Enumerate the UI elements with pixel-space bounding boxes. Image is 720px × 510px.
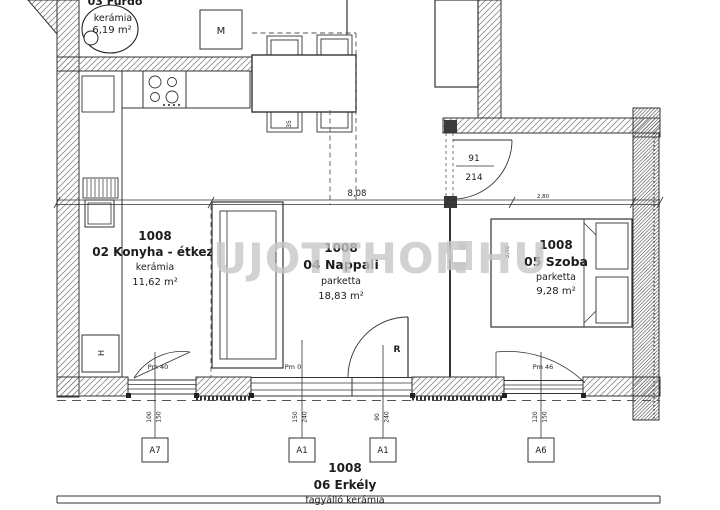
window-a7 (128, 380, 196, 394)
door-r-label: R (394, 345, 401, 355)
watermark-text-right: HU (477, 234, 548, 283)
bathroom-name: 03 Fürdő (88, 0, 143, 8)
door-a1 (251, 378, 412, 397)
bedroom-door-swing-arc (453, 140, 512, 199)
callout-boxes (142, 438, 554, 462)
stove (143, 71, 186, 108)
facade-pier-3 (412, 377, 504, 396)
shaft-box (435, 0, 478, 87)
living-room: R 1008 04 Nappali parketta 18,83 m² (212, 202, 408, 377)
callout-id-a1a: A1 (296, 446, 307, 456)
wall-block-door-bottom (444, 196, 457, 208)
kitchen-unit: 1008 (138, 229, 171, 243)
facade-pier-4 (583, 377, 660, 396)
living-area: 18,83 m² (318, 291, 364, 302)
balcony-name: 06 Erkély (314, 478, 377, 492)
sink (85, 200, 114, 227)
facade-pier-2 (196, 377, 251, 396)
wall-block-door-top (444, 120, 457, 133)
pillow-2 (596, 277, 628, 323)
a6-width: 120 (532, 411, 539, 423)
callout-ids: A7 A1 A1 A6 (149, 446, 546, 456)
a1a-width: 150 (292, 411, 299, 423)
bedroom: 91 214 1008 05 Szoba parketta 9,28 m² 3,… (446, 133, 632, 327)
watermark-text-left: UJOTTHON (213, 234, 471, 283)
parapet-right-label: Pm 46 (533, 363, 554, 371)
sofa (212, 202, 283, 368)
watermark-logo-hole (453, 250, 466, 262)
wall-topright-vertical (478, 0, 501, 118)
bedroom-width-dim: 2,80 (537, 194, 550, 200)
pillow-1 (596, 223, 628, 269)
facade-openings (57, 378, 660, 401)
a1a-height: 240 (302, 411, 309, 423)
floor-plan: M 03 Fürdő kerámia 6,19 m² H 1008 02 Kon… (0, 0, 720, 510)
door-height-label: 214 (465, 173, 482, 183)
callout-id-a6: A6 (535, 446, 546, 456)
table-dimension: 35 (286, 120, 293, 128)
a7-height: 150 (156, 411, 163, 423)
watermark: UJOTTHON HU (213, 234, 548, 283)
a1b-height: 240 (384, 411, 391, 423)
callout-id-a1b: A1 (377, 446, 388, 456)
dining-table (252, 55, 356, 112)
facade-pier-1 (57, 377, 128, 396)
bathroom-floor: kerámia (94, 13, 132, 24)
bedroom-area: 9,28 m² (536, 286, 575, 297)
floor-plan-drawing: M 03 Fürdő kerámia 6,19 m² H 1008 02 Kon… (0, 0, 720, 510)
washing-machine-label: M (217, 26, 226, 37)
window-a6 (504, 381, 583, 394)
balcony-unit: 1008 (328, 461, 361, 475)
balcony: 1008 06 Erkély fagyálló kerámia (57, 461, 660, 506)
kitchen-area: 11,62 m² (132, 277, 178, 288)
a7-width: 100 (146, 411, 153, 423)
wall-topleft-slant (28, 0, 57, 34)
drainer (83, 178, 118, 198)
kitchen-floor: kerámia (136, 262, 174, 273)
callout-id-a7: A7 (149, 446, 160, 456)
total-width-dim: 8,08 (348, 189, 367, 199)
wall-bedroom-top (443, 118, 660, 133)
a6-height: 150 (542, 411, 549, 423)
dimension-line: 8,08 2,80 (54, 189, 663, 208)
bathroom-area: 6,19 m² (92, 25, 131, 36)
kitchen-name: 02 Konyha - étkező (92, 245, 221, 259)
bathroom: M 03 Fürdő kerámia 6,19 m² (82, 0, 242, 53)
radiator-label: H (97, 350, 106, 356)
parapet-left-label: Pm 40 (148, 363, 169, 371)
kitchen-cabinet (82, 76, 114, 112)
parapet-middle-label: Pm 0 (285, 363, 301, 371)
a1b-width: 90 (374, 413, 381, 421)
dining-set: 35 (252, 35, 356, 132)
balcony-floor: fagyálló kerámia (305, 495, 384, 506)
door-width-label: 91 (468, 154, 479, 164)
callout-dims: 100 150 150 240 90 240 120 150 (146, 411, 549, 423)
